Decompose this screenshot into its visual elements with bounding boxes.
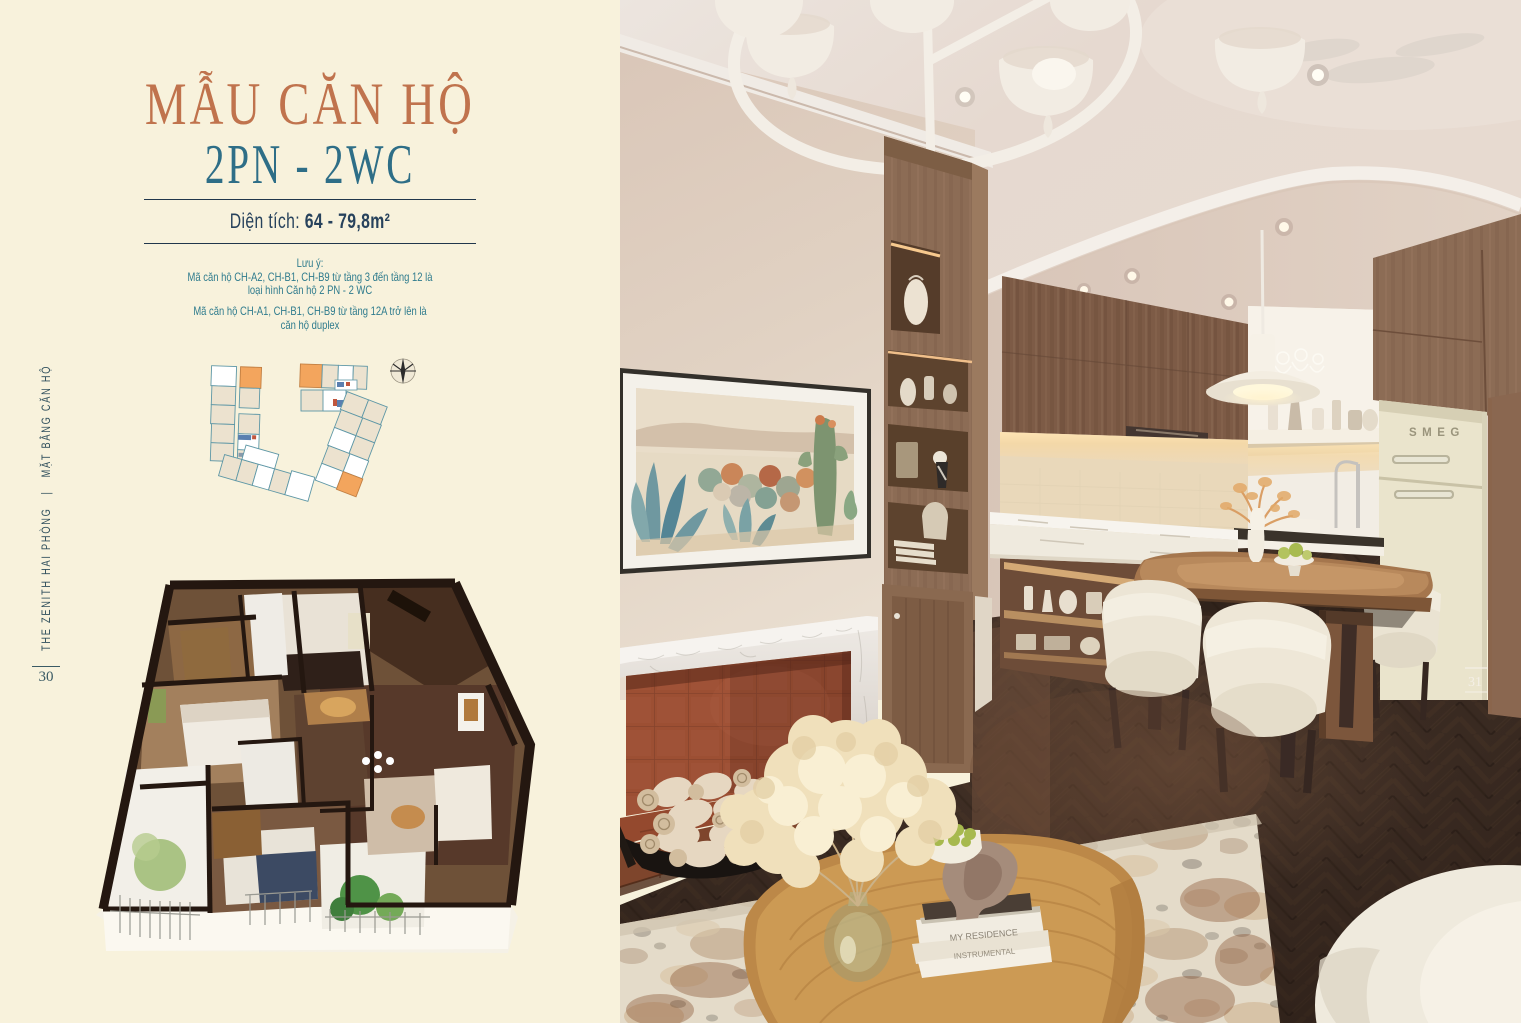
svg-text:SMEG: SMEG — [1409, 427, 1465, 439]
svg-text:31: 31 — [1468, 675, 1482, 690]
